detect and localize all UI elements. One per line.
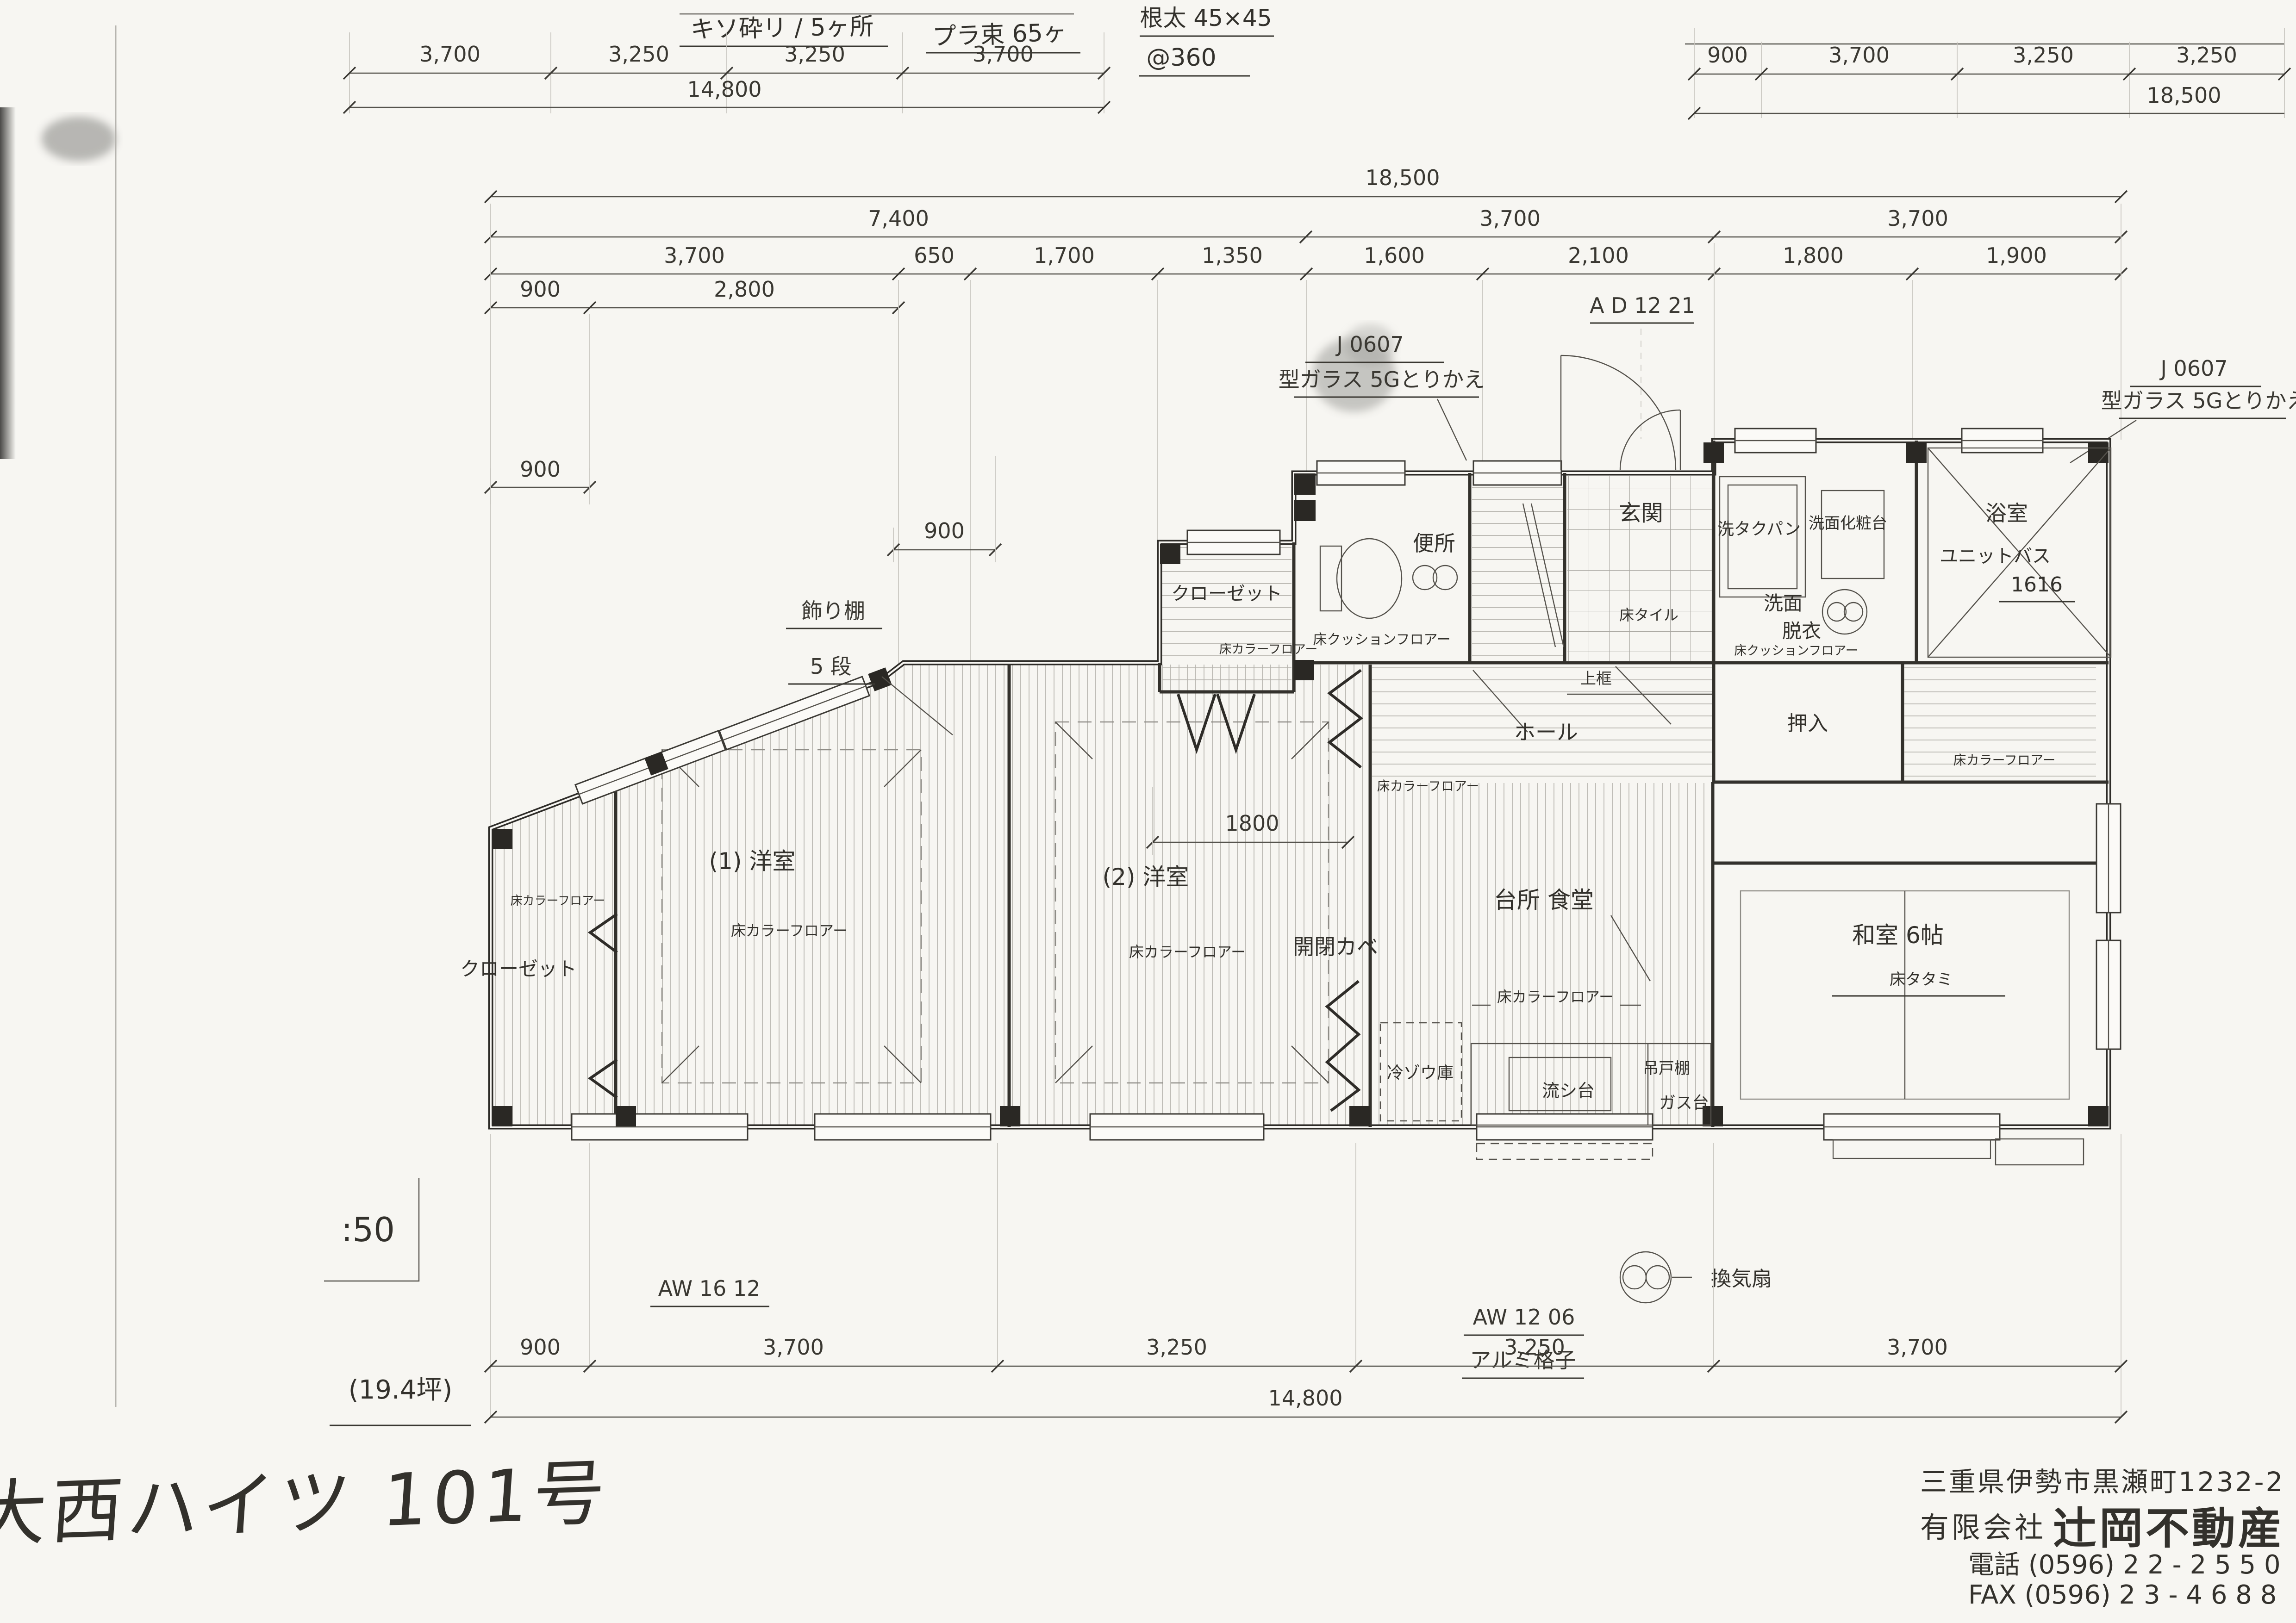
dim: 3,250	[1146, 1335, 1207, 1360]
laundry-pan-label: 洗タクパン	[1717, 520, 1801, 539]
entrance-door-label: A D 12 21	[1590, 293, 1695, 439]
dim: 3,700	[973, 42, 1034, 67]
window-bottom-3	[1090, 1114, 1264, 1140]
glass-text: 型ガラス 5Gとりかえ	[1279, 367, 1485, 392]
floor-note: 床タイル	[1619, 606, 1678, 624]
dim: 900	[520, 277, 561, 302]
window-right-1	[2096, 804, 2121, 913]
hanging-shelf-label: 吊戸棚	[1643, 1059, 1690, 1078]
glass-code: J 0607	[1335, 332, 1404, 357]
glass-text: 型ガラス 5Gとりかえ	[2101, 388, 2296, 413]
window-toilet-top	[1317, 461, 1405, 485]
step-label: 上框	[1580, 670, 1612, 688]
shelf-label: 飾り棚	[801, 598, 865, 623]
room-name: 浴室	[1985, 501, 2028, 526]
window-closet-top	[1187, 530, 1280, 554]
floor-note: 床クッションフロアー	[1313, 632, 1450, 648]
dim: 3,700	[1828, 43, 1890, 68]
window-bath-top	[1962, 429, 2043, 453]
window-code-labels: AW 16 12 AW 12 06 アルミ格子	[650, 1276, 1584, 1378]
stamp-address: 三重県伊勢市黒瀬町1232-2	[1920, 1466, 2284, 1498]
dim-total-main: 18,500	[1366, 165, 1440, 190]
room-name: 押入	[1787, 712, 1828, 735]
glass-code: J 0607	[2159, 356, 2227, 381]
dim: 900	[1707, 43, 1748, 68]
dim: 1800	[1225, 811, 1279, 836]
dim: 900	[520, 1335, 561, 1360]
stamp-company-name: 辻岡不動産	[2053, 1504, 2284, 1554]
dim: 3,700	[1479, 206, 1541, 231]
shelf-steps: 5 段	[810, 654, 852, 679]
window-bottom-1	[572, 1114, 748, 1140]
room-toilet: 便所 床クッションフロアー	[1313, 531, 1455, 648]
aux-dims-top-left: 3,700 3,250 3,250 3,700 14,800	[343, 32, 1110, 113]
door-code: A D 12 21	[1590, 293, 1695, 318]
dim: 3,250	[1504, 1335, 1565, 1360]
room-name: クローゼット	[460, 958, 577, 980]
room-name: (1) 洋室	[709, 848, 796, 875]
dim: 900	[520, 457, 561, 482]
dim: 3,250	[2176, 43, 2237, 68]
dim: 1,800	[1783, 243, 1844, 268]
floor-note: 床タタミ	[1890, 970, 1953, 989]
window-right-2	[2096, 940, 2121, 1049]
joist-pitch-note: @360	[1146, 44, 1216, 72]
room-name: ホール	[1514, 720, 1578, 745]
gas-label: ガス台	[1659, 1094, 1709, 1113]
vanity-unit	[1822, 491, 1884, 578]
corridor: 床カラーフロアー	[1953, 752, 2056, 768]
area-label: (19.4坪)	[349, 1375, 452, 1405]
dim-total: 18,500	[2147, 83, 2221, 108]
window-washitsu	[1824, 1114, 2000, 1158]
dim: 7,400	[868, 206, 929, 231]
dim: 3,250	[608, 42, 669, 67]
partition-label: 開閉カベ	[1293, 934, 1378, 959]
floor-plan-canvas: キソ砕リ / 5ヶ所 プラ束 65ヶ 根太 45×45 @360 3,700 3…	[0, 0, 2296, 1623]
dim: 3,700	[419, 42, 480, 67]
window-washroom-top	[1735, 429, 1816, 453]
fridge-label: 冷ゾウ庫	[1387, 1063, 1454, 1082]
dim: 3,700	[1887, 206, 1948, 231]
building-name: 大西ハイツ 101号	[0, 1451, 612, 1557]
title-block: :50 (19.4坪)	[324, 1178, 471, 1425]
room-name: (2) 洋室	[1103, 864, 1189, 890]
stamp-fax: FAX (0596) 2 3 - 4 6 8 8	[1968, 1580, 2277, 1610]
floor-note: 床クッションフロアー	[1734, 644, 1858, 658]
dim-total: 14,800	[1268, 1386, 1343, 1411]
fan-label: 換気扇	[1711, 1267, 1772, 1291]
stamp-tel: 電話 (0596) 2 2 - 2 5 5 0	[1968, 1550, 2281, 1580]
room-washroom: 洗タクパン 洗面化粧台 洗面 脱衣 床クッションフロアー	[1717, 514, 1887, 658]
aw1612-label: AW 16 12	[658, 1276, 761, 1301]
dim: 1,700	[1034, 243, 1095, 268]
partition-name: 開閉カベ	[1293, 934, 1378, 959]
room-bath: 浴室 ユニットバス 1616	[1940, 501, 2075, 602]
dim: 2,800	[714, 277, 775, 302]
floor-note: 床カラーフロアー	[1219, 642, 1318, 657]
dim: 650	[914, 243, 955, 268]
floor-note: 床カラーフロアー	[511, 894, 605, 908]
dim: 2,100	[1568, 243, 1629, 268]
scanned-floor-plan-sheet: キソ砕リ / 5ヶ所 プラ束 65ヶ 根太 45×45 @360 3,700 3…	[0, 0, 2296, 1623]
handwritten-title: 大西ハイツ 101号	[0, 1451, 612, 1557]
window-kitchen-aw1206	[1477, 1114, 1653, 1159]
dim-900-step: 900	[887, 456, 1001, 562]
floor-note: 床カラーフロアー	[731, 922, 848, 939]
aw1206-label: AW 12 06	[1473, 1305, 1575, 1330]
floor-note: 床カラーフロアー	[1953, 752, 2056, 768]
bath-type: ユニットバス	[1940, 546, 2051, 567]
dim: 3,700	[1887, 1335, 1948, 1360]
room-name: 和室 6帖	[1852, 922, 1944, 949]
dim: 3,250	[784, 42, 845, 67]
scale-label: :50	[341, 1210, 395, 1249]
washbasin	[1822, 590, 1867, 634]
dim: 1,900	[1986, 243, 2047, 268]
aux-dims-top-right: 900 3,700 3,250 3,250 18,500	[1685, 28, 2290, 119]
foundation-note: キソ砕リ / 5ヶ所	[690, 13, 874, 44]
dim: 1,350	[1202, 243, 1263, 268]
vanity-label: 洗面化粧台	[1809, 514, 1887, 533]
window-niche-top	[1473, 461, 1561, 485]
room-name: クローゼット	[1171, 583, 1282, 604]
room-name: 台所 食堂	[1494, 887, 1594, 914]
dim-900-left: 900	[485, 457, 596, 504]
room-name-1: 洗面	[1764, 592, 1803, 615]
room-name-2: 脱衣	[1782, 620, 1821, 642]
sink-label: 流シ台	[1542, 1081, 1595, 1101]
room-oshiire: 押入	[1787, 712, 1828, 735]
dim: 900	[924, 518, 965, 543]
ventilation-fan	[1620, 1252, 1692, 1303]
joist-note: 根太 45×45	[1140, 5, 1272, 31]
dim: 3,700	[664, 243, 725, 268]
room-washitsu: 和室 6帖 床タタミ	[1832, 922, 2005, 996]
dim: 3,250	[2013, 43, 2074, 68]
floor-note: 床カラーフロアー	[1377, 778, 1479, 794]
stamp-company-prefix: 有限会社	[1920, 1511, 2046, 1544]
floor-note: 床カラーフロアー	[1497, 988, 1614, 1006]
dim: 3,700	[763, 1335, 824, 1360]
window-bottom-2	[815, 1114, 991, 1140]
company-stamp: 三重県伊勢市黒瀬町1232-2 有限会社 辻岡不動産 電話 (0596) 2 2…	[1920, 1466, 2284, 1610]
floor-note: 床カラーフロアー	[1129, 943, 1246, 961]
room-name: 便所	[1413, 531, 1455, 556]
bath-size: 1616	[2011, 573, 2063, 597]
room-name: 玄関	[1619, 500, 1663, 526]
dim-total: 14,800	[687, 77, 762, 102]
dim: 1,600	[1364, 243, 1425, 268]
